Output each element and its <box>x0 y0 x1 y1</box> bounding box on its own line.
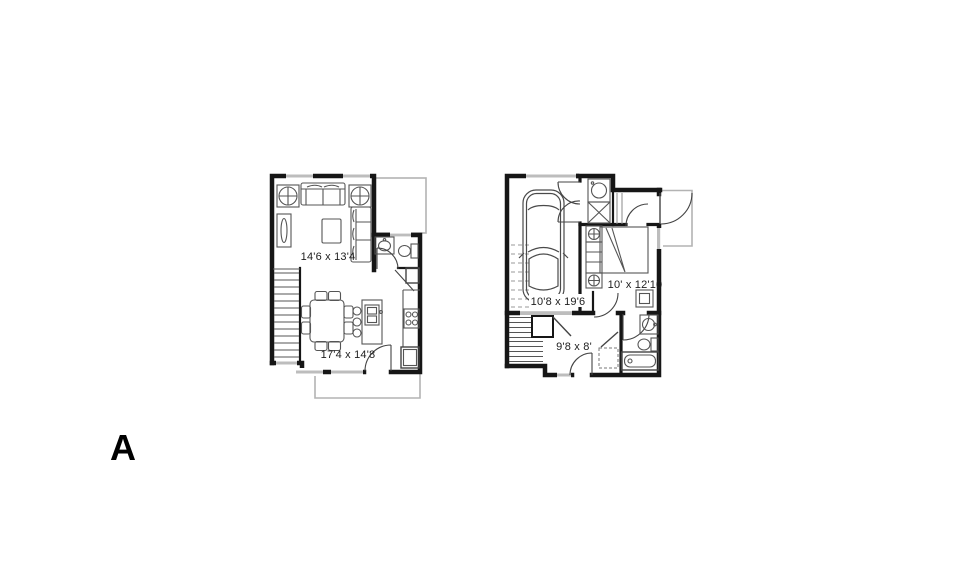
dryer-icon <box>588 202 610 223</box>
toilet-icon <box>399 244 419 258</box>
adjacent-roof-outline <box>374 178 426 233</box>
floor-plan-sheet: 14'6 x 13'4 17'4 x 14'8 <box>0 0 960 576</box>
armchair-icon <box>277 185 299 207</box>
plan-letter-label: A <box>110 427 136 468</box>
closet-door <box>395 270 414 291</box>
coffee-table-icon <box>322 219 341 243</box>
entry-door-swing <box>660 193 692 224</box>
door-swing <box>377 248 398 269</box>
armchair-icon <box>349 185 371 207</box>
sofa-icon <box>301 183 345 205</box>
stove-icon <box>404 309 419 328</box>
closet <box>395 268 419 291</box>
driveway-dashed-lines <box>511 245 531 307</box>
patio-outline <box>315 374 420 398</box>
den-dimension: 9'8 x 8' <box>556 341 592 353</box>
refrigerator-icon <box>401 347 419 368</box>
toilet-icon <box>638 338 658 351</box>
den-closet <box>599 332 618 368</box>
closet-door <box>601 332 618 347</box>
closet-shelf <box>599 348 618 368</box>
stairs-icon <box>274 273 299 357</box>
kitchen-counter <box>401 290 420 368</box>
dining-kitchen-dimension: 17'4 x 14'8 <box>321 349 376 361</box>
island-sink-icon <box>365 305 382 325</box>
upper-floor-plan: 14'6 x 13'4 17'4 x 14'8 <box>272 172 426 398</box>
bathtub-icon <box>622 352 659 370</box>
window <box>655 228 663 249</box>
living-room-dimension: 14'6 x 13'4 <box>301 251 356 263</box>
door-swing <box>626 204 648 226</box>
door-swing <box>594 293 618 317</box>
dining-table-icon <box>302 292 354 351</box>
stair-landing <box>532 316 553 337</box>
porch-outline <box>661 191 692 247</box>
door-swing <box>558 182 580 222</box>
garage-dimension: 10'8 x 19'6 <box>531 296 586 308</box>
door-swing <box>623 314 649 340</box>
window <box>331 368 363 376</box>
stairs-icon <box>509 316 553 362</box>
vanity-sink-icon <box>375 237 394 254</box>
stool-icon <box>353 307 361 337</box>
angled-door <box>553 317 571 336</box>
window <box>286 172 313 180</box>
window <box>557 371 571 379</box>
entry-floor-plan: 10'8 x 19'6 10' x 12'10 9'8 x 8' <box>507 172 692 379</box>
kitchen-island-icon <box>353 300 382 344</box>
tv-console-icon <box>277 214 291 247</box>
car-icon <box>519 190 568 302</box>
nightstand-icon <box>586 273 602 288</box>
window <box>276 359 297 367</box>
desk-icon <box>636 290 653 307</box>
bed-icon <box>600 227 648 273</box>
window <box>526 172 576 180</box>
bedroom-dimension: 10' x 12'10 <box>608 279 663 291</box>
door-swing <box>570 353 592 375</box>
window <box>296 368 323 376</box>
washer-icon <box>588 179 610 202</box>
window <box>343 172 370 180</box>
